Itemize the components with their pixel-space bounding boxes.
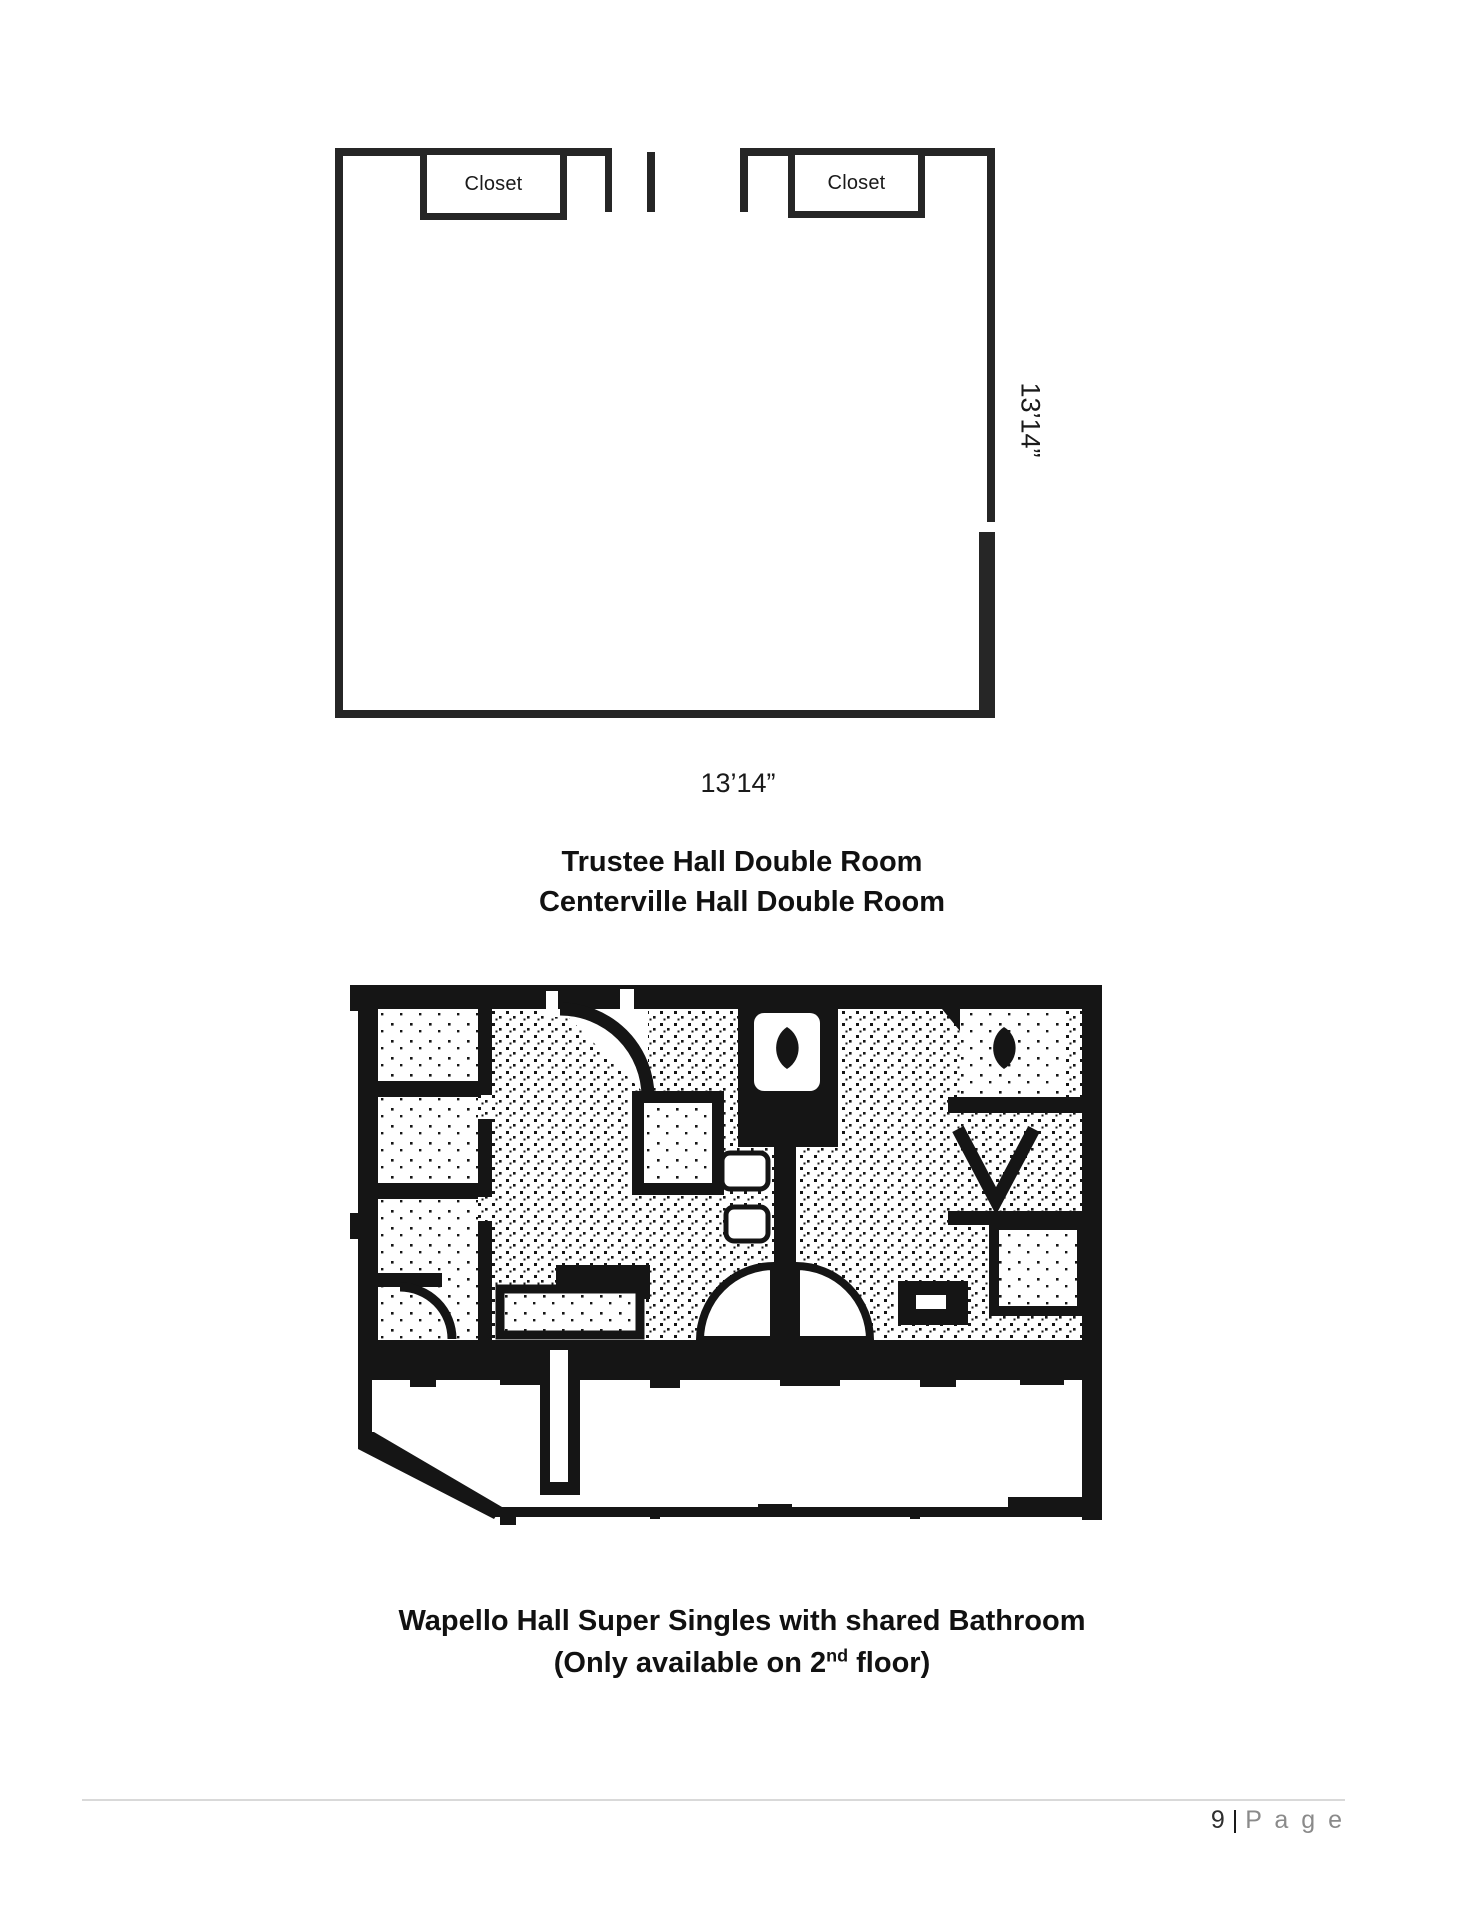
availability-suffix: floor): [848, 1647, 930, 1679]
caption-wapello: Wapello Hall Super Singles with shared B…: [0, 1600, 1484, 1684]
footer-separator: |: [1232, 1806, 1239, 1834]
door-jamb-left: [605, 148, 612, 212]
caption-line-trustee: Trustee Hall Double Room: [0, 842, 1484, 882]
footer-rule: [82, 1799, 1345, 1801]
room-width-dimension: 13’14”: [700, 768, 775, 799]
closet-left-label: Closet: [465, 173, 523, 196]
closet-right-box: Closet: [788, 148, 925, 218]
closet-right-label: Closet: [828, 172, 886, 195]
wapello-floor-plan-image: [350, 985, 1110, 1543]
caption-line-availability: (Only available on 2nd floor): [0, 1642, 1484, 1684]
footer-page-word: P a g e: [1245, 1806, 1345, 1834]
caption-line-wapello: Wapello Hall Super Singles with shared B…: [0, 1600, 1484, 1642]
room-wall-right-lower: [979, 532, 995, 710]
closet-left-box: Closet: [420, 148, 567, 220]
door-jamb-right: [740, 148, 748, 212]
room-wall-left: [335, 148, 343, 718]
caption-double-rooms: Trustee Hall Double Room Centerville Hal…: [0, 842, 1484, 922]
document-page: Closet Closet 13’14” 13’14” Trustee Hall…: [0, 0, 1484, 1920]
availability-prefix: (Only available on 2: [554, 1647, 826, 1679]
caption-line-centerville: Centerville Hall Double Room: [0, 882, 1484, 922]
room-wall-right-upper: [987, 148, 995, 522]
room-wall-bottom: [335, 710, 995, 718]
room-height-dimension: 13’14”: [1015, 382, 1046, 457]
room-outline-diagram: Closet Closet 13’14” 13’14”: [335, 148, 995, 718]
door-jamb-middle: [647, 152, 655, 212]
page-number: 9: [1211, 1806, 1225, 1834]
page-footer: 9|P a g e: [1211, 1806, 1345, 1835]
plan-corridor-ragged-edge: [410, 1380, 1064, 1388]
availability-ordinal-superscript: nd: [826, 1645, 848, 1665]
